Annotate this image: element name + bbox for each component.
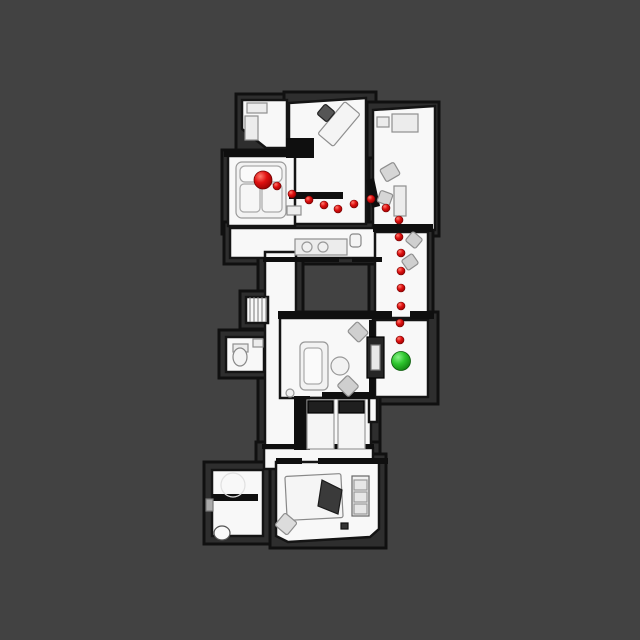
desk-top-right [392,114,418,132]
path-waypoint-15 [396,336,404,344]
sink-mid-left [253,339,263,347]
path-waypoint-10 [397,249,405,257]
stool [286,389,294,397]
path-waypoint-14 [396,319,404,327]
path-waypoint-7 [382,204,390,212]
coffee-table [287,206,301,215]
wall-mid-living-top-right [410,311,434,319]
goal-marker [392,352,411,371]
wall-hall-bottom-right [352,257,382,262]
path-waypoint-5 [350,200,358,208]
tv-stand-inner [371,345,380,370]
side-table-top-right [377,117,389,127]
closet-shelf-a [247,103,267,113]
path-waypoint-2 [305,196,313,204]
toilet-mid-left-bowl [233,348,247,366]
wall-mid-living-top-left [278,311,392,319]
floorplan-map [0,0,640,640]
path-waypoint-9 [395,233,403,241]
dresser-drawer-b [354,492,367,502]
start-marker [254,171,272,189]
sink-bowl-b [318,242,328,252]
dresser-drawer-a [354,480,367,490]
wall-step-block [286,138,314,158]
wall-bottom-bed-top-b [318,458,388,464]
path-waypoint-3 [320,201,328,209]
closet-shelf-b [245,116,258,140]
wall-bottom-left-divider [212,494,258,501]
path-waypoint-8 [395,216,403,224]
path-waypoint-13 [397,302,405,310]
wall-top-right-bottom [373,224,433,232]
path-waypoint-4 [334,205,342,213]
small-dark-item [341,523,348,529]
floor-stairs [246,297,268,323]
path-waypoint-12 [397,284,405,292]
path-waypoint-0 [273,182,281,190]
floor-sliver [369,398,377,422]
toilet-nook [350,234,361,247]
round-table [331,357,349,375]
wall-tab [206,499,213,511]
wall-hall-bottom-left [263,257,339,262]
twin-bed-a-pillow [308,401,333,413]
path-waypoint-11 [397,267,405,275]
floorplan-stage [0,0,640,640]
wall-bottom-bed-top-a [276,458,302,464]
path-waypoint-1 [288,190,296,198]
wall-top-mid-bottom [289,192,343,199]
path-waypoint-6 [367,195,375,203]
toilet-bottom-left [214,526,230,540]
dresser-drawer-c [354,504,367,514]
couch-seat-a [240,184,260,212]
twin-bed-b-pillow [339,401,364,413]
cabinet-top-right [394,186,406,216]
sofa-mid-cushion [304,348,322,384]
sink-bowl-a [302,242,312,252]
